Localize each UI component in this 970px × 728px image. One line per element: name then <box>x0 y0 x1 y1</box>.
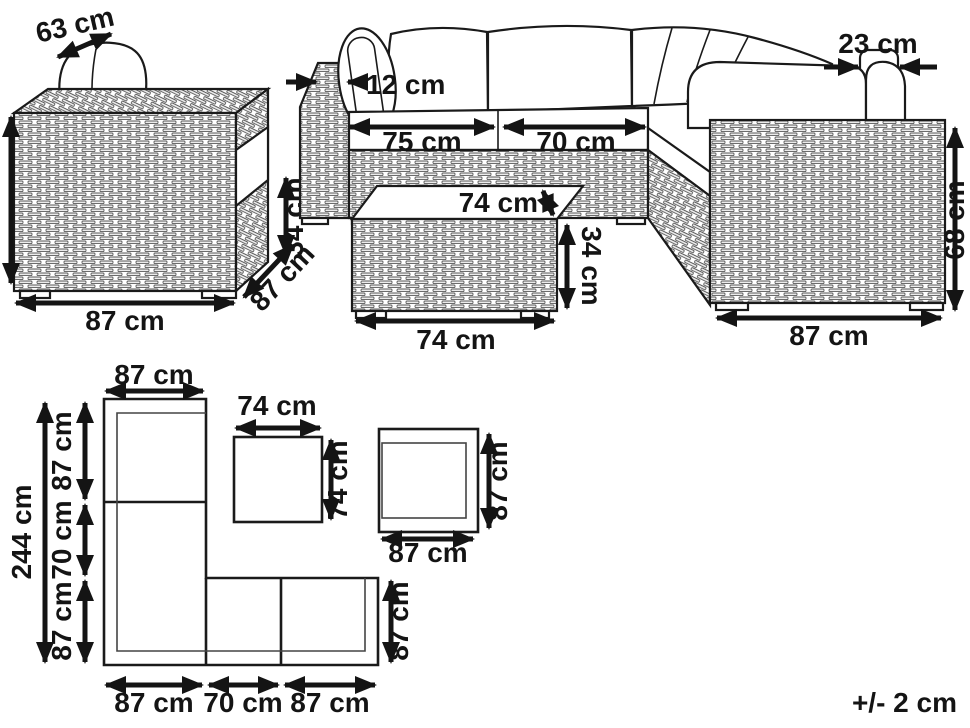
dim-sofa-side-height-label: 68 cm <box>939 180 970 259</box>
dim-table-top-depth-label: 74 cm <box>459 187 538 218</box>
sofa-right-back-pillow <box>688 62 866 128</box>
sofa-back-cushion-2 <box>488 26 632 112</box>
dim-sofa-armrest-label: 12 cm <box>366 69 445 100</box>
dim-table-height-label: 34 cm <box>576 226 607 305</box>
dim-sofa-seat-left-label: 75 cm <box>382 126 461 157</box>
sofa-foot-1 <box>302 218 328 224</box>
dim-plan-bottom-left-label: 87 cm <box>114 687 193 718</box>
sofa-foot-5 <box>910 303 943 310</box>
dim-plan-seg-mid-label: 70 cm <box>46 500 77 579</box>
dim-plan-chair-depth-label: 87 cm <box>482 441 513 520</box>
dim-plan-seg-bottom-label: 87 cm <box>46 581 77 660</box>
dim-plan-chair-width-label: 87 cm <box>388 537 467 568</box>
table-foot-left <box>356 311 386 318</box>
dim-table-width-label: 74 cm <box>416 324 495 355</box>
dim-plan-bottom-right-label: 87 cm <box>290 687 369 718</box>
dim-sofa-seat-right-label: 70 cm <box>536 126 615 157</box>
dim-plan-total-depth-label: 244 cm <box>6 485 37 580</box>
sofa-foot-4 <box>716 303 748 310</box>
dim-plan-bottom-mid-label: 70 cm <box>203 687 282 718</box>
dim-plan-table-depth-label: 74 cm <box>322 440 353 519</box>
dim-sofa-armrest-top-label: 23 cm <box>838 28 917 59</box>
sofa-foot-3 <box>617 218 645 224</box>
sofa-right-panel <box>710 120 945 303</box>
armchair-top-face <box>14 89 268 113</box>
sofa-right-side-pillow <box>866 62 905 128</box>
armchair-foot-right <box>202 291 236 298</box>
dim-plan-seg-top-label: 87 cm <box>46 411 77 490</box>
plan-table-square <box>234 437 322 522</box>
plan-armchair-square <box>379 429 478 532</box>
dim-armchair-back-width-label: 63 cm <box>33 1 117 49</box>
armchair-foot-left <box>20 291 50 298</box>
furniture-dimensions-drawing: 63 cm 87 cm 87 cm 34 cm <box>0 0 970 728</box>
dim-sofa-end-width-label: 87 cm <box>789 320 868 351</box>
table-foot-right <box>521 311 549 318</box>
armchair-3d-view <box>14 43 268 298</box>
dim-armchair-width-label: 87 cm <box>85 305 164 336</box>
dim-plan-row-depth-label: 87 cm <box>383 581 414 660</box>
dim-plan-top-width-label: 87 cm <box>114 359 193 390</box>
armchair-front-face <box>14 113 236 291</box>
dim-plan-table-width-label: 74 cm <box>237 390 316 421</box>
table-front-face <box>352 219 557 311</box>
dimension-diagram: 63 cm 87 cm 87 cm 34 cm <box>0 0 970 728</box>
tolerance-note: +/- 2 cm <box>852 687 957 718</box>
floor-plan <box>104 399 478 665</box>
